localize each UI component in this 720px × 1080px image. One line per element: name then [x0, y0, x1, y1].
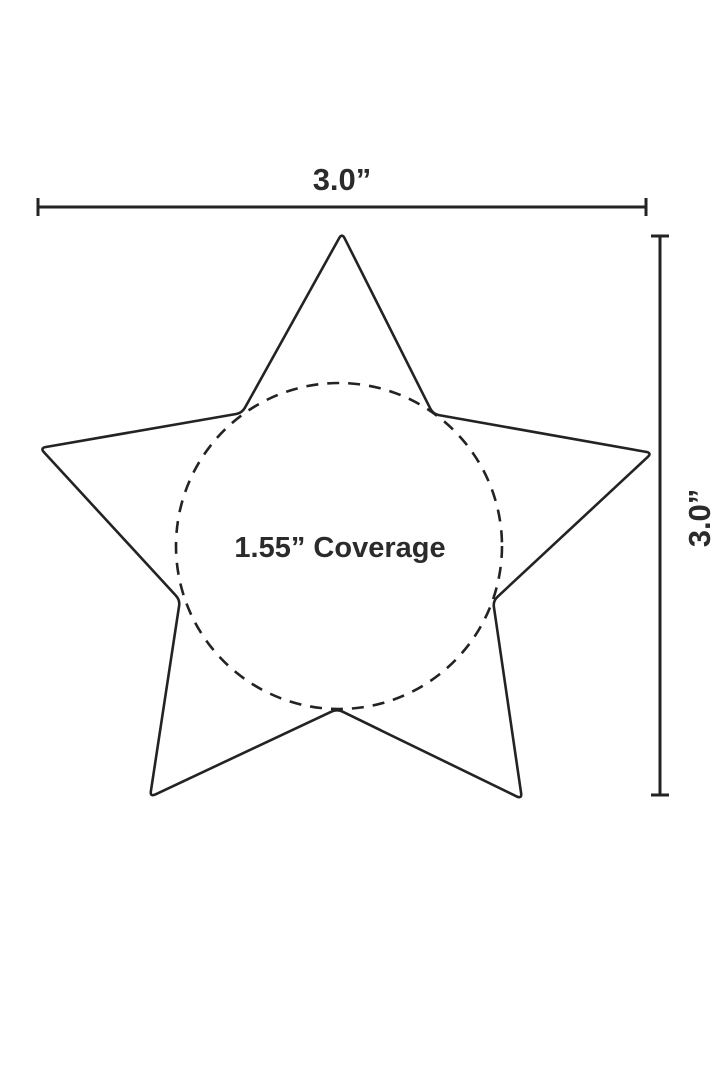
- diagram-shapes: [38, 198, 669, 797]
- star-outline: [42, 236, 649, 798]
- coverage-area-label: 1.55” Coverage: [234, 532, 445, 564]
- diagram-page: 3.0” 3.0” 1.55” Coverage: [0, 0, 720, 1080]
- height-dimension-label: 3.0”: [682, 489, 717, 548]
- width-dimension-label: 3.0”: [313, 162, 372, 197]
- star-coverage-diagram: 3.0” 3.0” 1.55” Coverage: [0, 0, 720, 1080]
